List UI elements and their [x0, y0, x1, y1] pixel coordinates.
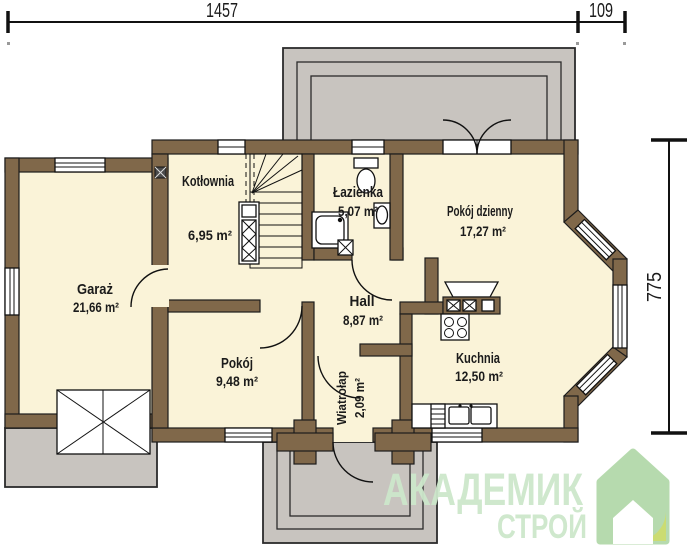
room-area-lazienka: 5,07 m²	[338, 203, 378, 219]
garage-top-window	[55, 158, 105, 172]
room-label-pokoj: Pokój	[221, 355, 253, 372]
room-label-wiatrolap: Wiatrołap	[334, 371, 349, 425]
garage-left-window	[5, 268, 19, 315]
garage-door	[57, 390, 150, 454]
room-area-pokoj-dzienny: 17,27 m²	[460, 223, 506, 239]
floor-plan: Kotłownia 6,95 m² Łazienka 5,07 m² Pokój…	[0, 0, 690, 548]
wall	[360, 344, 412, 356]
wall	[168, 300, 260, 312]
wall	[400, 314, 412, 428]
room-area-pokoj: 9,48 m²	[216, 373, 258, 389]
boiler-room-window	[218, 140, 245, 154]
terrace	[283, 48, 575, 148]
room-label-hall: Hall	[350, 293, 375, 310]
floor-plan-page: Kotłownia 6,95 m² Łazienka 5,07 m² Pokój…	[0, 0, 690, 548]
bathroom-window	[352, 140, 384, 154]
kitchen-sink-counter	[412, 404, 497, 428]
room-area-kuchnia: 12,50 m²	[455, 368, 503, 384]
boiler	[239, 202, 259, 264]
wall	[400, 302, 443, 314]
washing-machine	[338, 240, 353, 255]
room-area-wiatrolap: 2,09 m²	[353, 378, 367, 418]
room-label-kuchnia: Kuchnia	[456, 350, 500, 367]
dimension-top	[7, 11, 626, 45]
watermark-logo-house-icon	[600, 452, 666, 544]
room-area-hall: 8,87 m²	[343, 312, 383, 328]
bay-right-window	[613, 285, 627, 348]
room-label-garaz: Garaż	[77, 281, 113, 298]
bedroom-window	[225, 428, 272, 442]
cooktop	[441, 314, 469, 340]
kitchen-window	[432, 428, 482, 442]
wall	[564, 140, 578, 222]
room-area-garaz: 21,66 m²	[73, 299, 119, 315]
dim-top-right-width: 109	[589, 0, 613, 22]
room-area-kotlownia: 6,95 m²	[188, 227, 232, 243]
kitchen-hood	[445, 282, 498, 297]
room-label-pokoj-dzienny: Pokój dzienny	[447, 203, 513, 220]
room-label-lazienka: Łazienka	[333, 184, 384, 201]
dim-right-height: 775	[644, 272, 666, 302]
room-label-kotlownia: Kotłownia	[182, 173, 234, 190]
wall	[390, 154, 403, 260]
watermark-line2: СТРОЙ	[497, 507, 587, 546]
dim-top-width: 1457	[206, 0, 238, 22]
vent-duct-icon	[155, 167, 166, 178]
wall	[302, 302, 314, 428]
garage-door-opening	[151, 265, 169, 307]
